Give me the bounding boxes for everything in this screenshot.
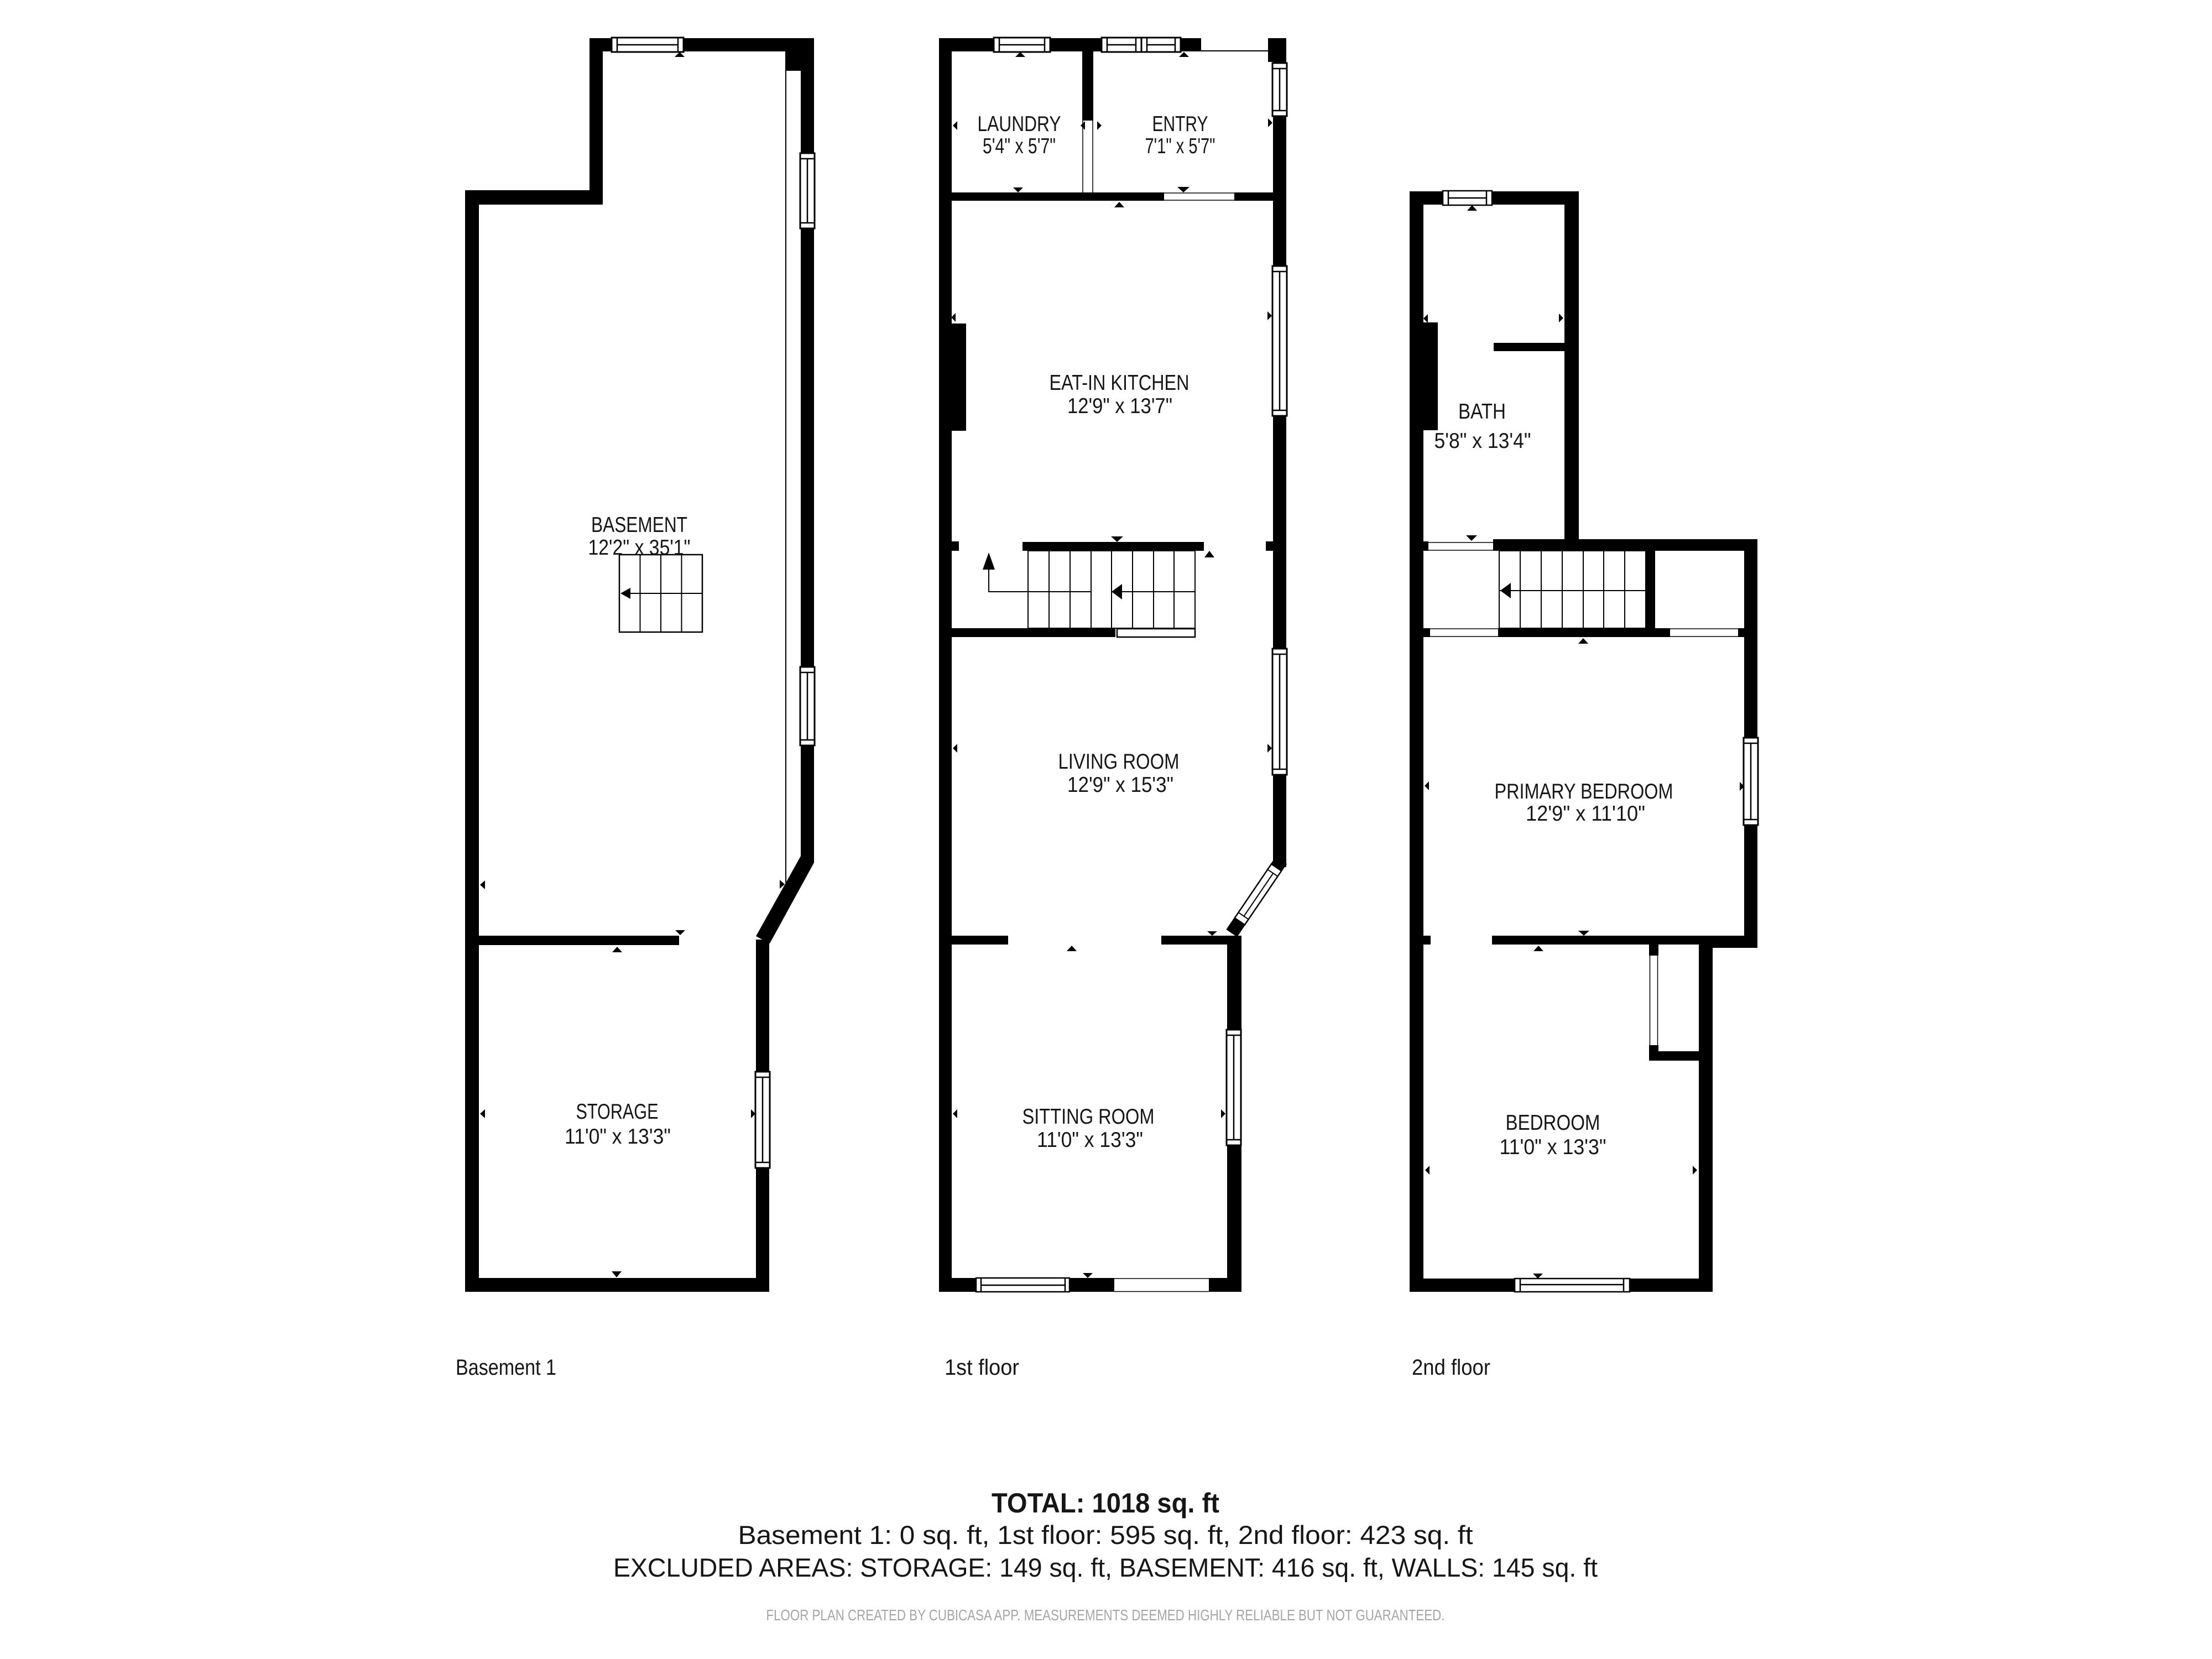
- svg-text:LIVING ROOM: LIVING ROOM: [1058, 750, 1180, 774]
- svg-text:12'9" x 13'7": 12'9" x 13'7": [1067, 394, 1172, 418]
- svg-text:EXCLUDED AREAS: STORAGE: 149 s: EXCLUDED AREAS: STORAGE: 149 sq. ft, BAS…: [613, 1553, 1598, 1582]
- svg-text:5'8" x 13'4": 5'8" x 13'4": [1434, 429, 1531, 453]
- svg-text:TOTAL: 1018 sq. ft: TOTAL: 1018 sq. ft: [992, 1488, 1219, 1519]
- svg-text:ENTRY: ENTRY: [1152, 112, 1208, 136]
- svg-text:11'0" x 13'3": 11'0" x 13'3": [1500, 1135, 1606, 1159]
- svg-text:12'9" x 11'10": 12'9" x 11'10": [1526, 802, 1645, 826]
- svg-text:STORAGE: STORAGE: [576, 1100, 659, 1124]
- svg-text:1st floor: 1st floor: [945, 1355, 1019, 1380]
- svg-text:2nd floor: 2nd floor: [1412, 1355, 1490, 1380]
- svg-text:PRIMARY BEDROOM: PRIMARY BEDROOM: [1495, 780, 1673, 804]
- svg-text:Basement 1: 0 sq. ft, 1st floo: Basement 1: 0 sq. ft, 1st floor: 595 sq.…: [738, 1520, 1473, 1550]
- svg-text:11'0" x 13'3": 11'0" x 13'3": [565, 1125, 671, 1149]
- svg-text:SITTING ROOM: SITTING ROOM: [1022, 1105, 1155, 1129]
- svg-text:12'9" x 15'3": 12'9" x 15'3": [1067, 773, 1173, 797]
- svg-text:12'2" x 35'1": 12'2" x 35'1": [588, 536, 691, 560]
- svg-text:EAT-IN KITCHEN: EAT-IN KITCHEN: [1050, 371, 1190, 395]
- svg-text:BEDROOM: BEDROOM: [1506, 1111, 1600, 1135]
- svg-text:FLOOR PLAN CREATED BY CUBICASA: FLOOR PLAN CREATED BY CUBICASA APP. MEAS…: [766, 1606, 1445, 1624]
- svg-text:5'4" x 5'7": 5'4" x 5'7": [983, 134, 1056, 158]
- svg-text:11'0" x 13'3": 11'0" x 13'3": [1037, 1128, 1143, 1152]
- svg-text:BATH: BATH: [1458, 400, 1506, 424]
- svg-text:Basement 1: Basement 1: [456, 1355, 556, 1380]
- svg-text:LAUNDRY: LAUNDRY: [978, 112, 1061, 136]
- svg-text:7'1" x 5'7": 7'1" x 5'7": [1145, 134, 1215, 158]
- svg-text:BASEMENT: BASEMENT: [591, 513, 687, 537]
